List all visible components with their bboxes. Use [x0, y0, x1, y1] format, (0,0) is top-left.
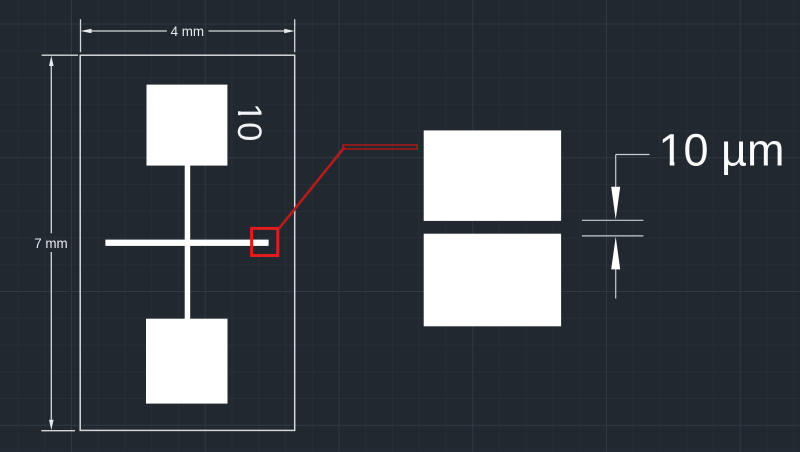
- svg-text:4 mm: 4 mm: [171, 24, 205, 39]
- svg-text:10 µm: 10 µm: [659, 125, 785, 176]
- svg-text:10: 10: [230, 103, 268, 141]
- svg-text:7 mm: 7 mm: [34, 236, 67, 251]
